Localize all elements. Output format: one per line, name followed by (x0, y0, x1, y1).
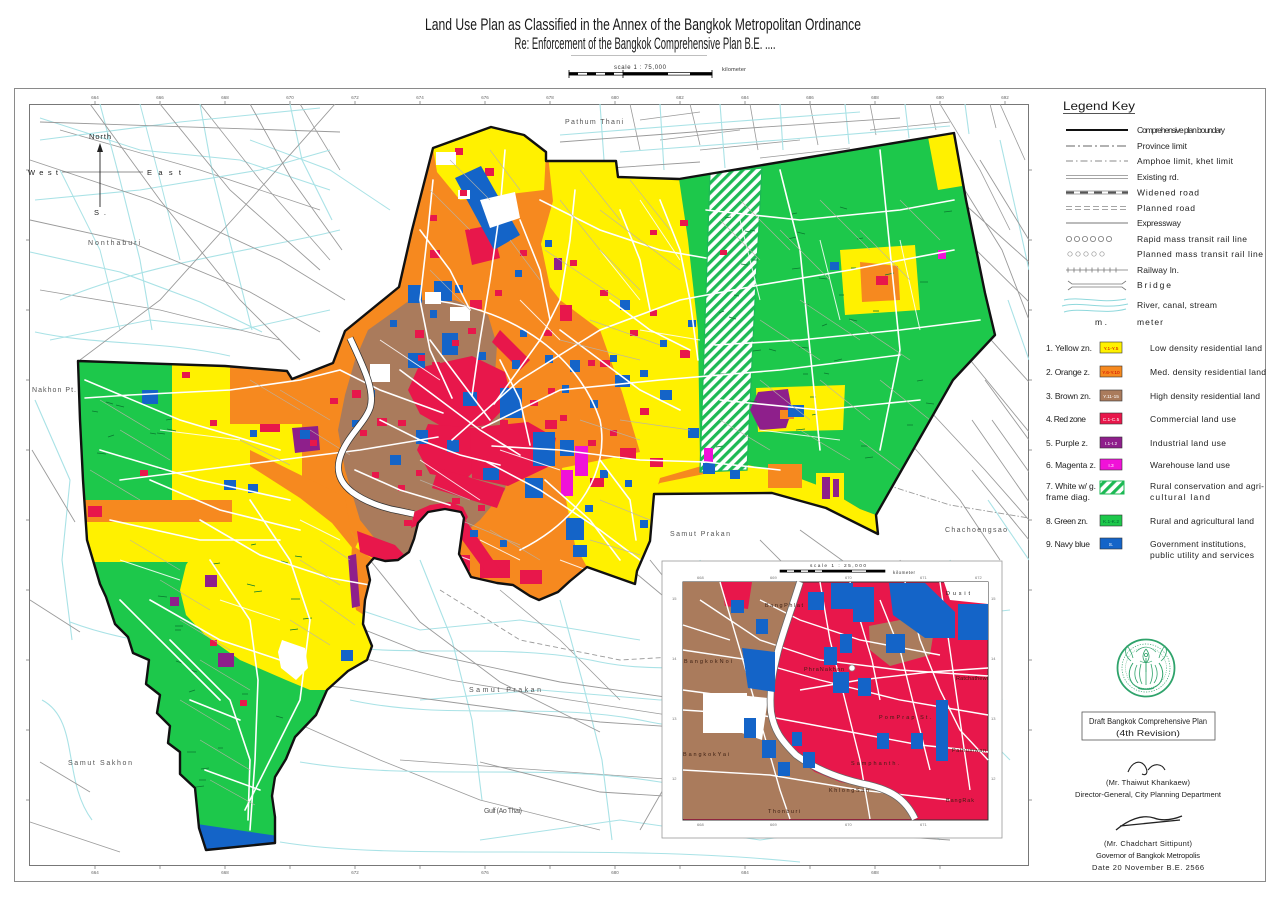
svg-text:Planned road: Planned road (1137, 203, 1195, 213)
svg-text:public utility and services: public utility and services (1150, 550, 1254, 560)
svg-text:BangkokYai: BangkokYai (683, 752, 729, 758)
svg-text:Province limit: Province limit (1137, 141, 1188, 151)
svg-text:Amphoe limit, khet limit: Amphoe limit, khet limit (1137, 156, 1234, 166)
svg-text:(4th Revision): (4th Revision) (1116, 728, 1180, 738)
svg-text:686: 686 (806, 95, 814, 100)
svg-text:Warehouse land use: Warehouse land use (1150, 460, 1230, 470)
svg-text:Y.6-Y.10: Y.6-Y.10 (1102, 370, 1120, 376)
svg-text:692: 692 (1001, 95, 1009, 100)
svg-text:(Mr. Thaiwut Khankaew): (Mr. Thaiwut Khankaew) (1106, 778, 1191, 787)
svg-text:Widened road: Widened road (1137, 188, 1199, 198)
svg-text:672: 672 (351, 870, 359, 875)
svg-text:680: 680 (611, 95, 619, 100)
svg-text:Director-General, City Plannin: Director-General, City Planning Departme… (1075, 790, 1222, 799)
svg-text:Expressway: Expressway (1137, 218, 1182, 228)
svg-text:671: 671 (920, 822, 927, 827)
svg-text:PomPrap St.: PomPrap St. (879, 715, 931, 721)
svg-text:Date 20 November B.E. 2566: Date 20 November B.E. 2566 (1092, 863, 1204, 872)
svg-text:7. White w/ g.: 7. White w/ g. (1046, 481, 1096, 491)
svg-text:Railway ln.: Railway ln. (1137, 265, 1179, 275)
svg-text:Y.1-Y.5: Y.1-Y.5 (1104, 346, 1119, 352)
svg-text:15: 15 (991, 596, 996, 601)
svg-text:K.1-K.2: K.1-K.2 (1103, 519, 1119, 525)
svg-text:Thonburi: Thonburi (768, 809, 800, 815)
svg-text:River, canal, stream: River, canal, stream (1137, 300, 1217, 310)
svg-text:682: 682 (676, 95, 684, 100)
svg-text:12: 12 (991, 776, 996, 781)
svg-text:9. Navy blue: 9. Navy blue (1046, 539, 1090, 549)
svg-text:688: 688 (871, 95, 879, 100)
svg-text:Low density residential land: Low density residential land (1150, 343, 1262, 353)
svg-text:668: 668 (221, 95, 229, 100)
svg-text:672: 672 (351, 95, 359, 100)
svg-text:Legend Key: Legend Key (1063, 99, 1135, 113)
svg-text:Y.11-15: Y.11-15 (1103, 394, 1119, 400)
svg-text:666: 666 (156, 95, 164, 100)
svg-text:Samut Prakan: Samut Prakan (670, 531, 730, 538)
svg-text:Gulf (Ao Thai): Gulf (Ao Thai) (484, 808, 522, 815)
svg-text:676: 676 (481, 870, 489, 875)
svg-text:C.1-C.5: C.1-C.5 (1103, 417, 1120, 423)
svg-text:684: 684 (741, 870, 749, 875)
svg-text:Rural conservation and agri-: Rural conservation and agri- (1150, 481, 1264, 491)
svg-text:frame diag.: frame diag. (1046, 492, 1090, 502)
svg-text:Comprehensive plan boundary: Comprehensive plan boundary (1137, 125, 1226, 135)
svg-text:kilometer: kilometer (722, 67, 746, 73)
svg-text:Pathum Thani: Pathum Thani (565, 119, 623, 126)
svg-text:1. Yellow zn.: 1. Yellow zn. (1046, 343, 1092, 353)
svg-text:Commercial land use: Commercial land use (1150, 414, 1236, 424)
svg-text:PhraNakhon: PhraNakhon (804, 667, 844, 673)
svg-text:14: 14 (991, 656, 996, 661)
svg-text:676: 676 (481, 95, 489, 100)
svg-text:I.3: I.3 (1108, 463, 1114, 469)
svg-text:690: 690 (936, 95, 944, 100)
svg-text:(Mr. Chadchart Sittipunt): (Mr. Chadchart Sittipunt) (1104, 839, 1193, 848)
svg-text:Government institutions,: Government institutions, (1150, 539, 1246, 549)
svg-text:670: 670 (286, 95, 294, 100)
svg-text:678: 678 (546, 95, 554, 100)
svg-text:684: 684 (741, 95, 749, 100)
svg-text:2. Orange z.: 2. Orange z. (1046, 367, 1090, 377)
svg-text:Nakhon Pt.: Nakhon Pt. (32, 387, 76, 394)
svg-text:6. Magenta z.: 6. Magenta z. (1046, 460, 1096, 470)
svg-text:Existing rd.: Existing rd. (1137, 172, 1179, 182)
svg-text:668: 668 (697, 575, 704, 580)
svg-text:cultural land: cultural land (1150, 492, 1210, 502)
svg-text:3. Brown zn.: 3. Brown zn. (1046, 391, 1091, 401)
svg-text:BangRak: BangRak (946, 798, 974, 804)
svg-text:Samut Sakhon: Samut Sakhon (68, 760, 132, 767)
svg-text:Samphanth.: Samphanth. (851, 761, 899, 767)
svg-text:Planned mass transit rail line: Planned mass transit rail line (1137, 249, 1263, 259)
svg-text:664: 664 (91, 95, 99, 100)
svg-text:8. Green zn.: 8. Green zn. (1046, 516, 1088, 526)
svg-text:High density residential land: High density residential land (1150, 391, 1260, 401)
svg-text:670: 670 (845, 575, 852, 580)
svg-text:Rapid mass transit rail line: Rapid mass transit rail line (1137, 234, 1247, 244)
svg-text:Rural and agricultural land: Rural and agricultural land (1150, 516, 1254, 526)
svg-text:12: 12 (672, 776, 677, 781)
svg-text:4. Red zone: 4. Red zone (1046, 414, 1086, 424)
svg-text:S.: S. (1109, 542, 1114, 548)
svg-text:688: 688 (871, 870, 879, 875)
svg-text:scale 1 : 75,000: scale 1 : 75,000 (614, 65, 667, 71)
svg-text:670: 670 (845, 822, 852, 827)
svg-text:Med. density residential land: Med. density residential land (1150, 367, 1266, 377)
svg-text:672: 672 (975, 575, 982, 580)
svg-text:I.1-I.2: I.1-I.2 (1105, 441, 1118, 447)
svg-text:Bridge: Bridge (1137, 280, 1171, 290)
svg-text:13: 13 (991, 716, 996, 721)
svg-text:Governor of Bangkok Metropolis: Governor of Bangkok Metropolis (1096, 851, 1200, 860)
svg-text:Draft Bangkok Comprehensive Pl: Draft Bangkok Comprehensive Plan (1089, 716, 1207, 726)
svg-text:Land Use Plan as Classified in: Land Use Plan as Classified in the Annex… (425, 16, 861, 34)
svg-text:669: 669 (770, 822, 777, 827)
svg-text:680: 680 (611, 870, 619, 875)
svg-text:13: 13 (672, 716, 677, 721)
svg-text:Pathumwan: Pathumwan (952, 748, 986, 754)
svg-text:668: 668 (697, 822, 704, 827)
svg-text:North: North (89, 132, 111, 141)
svg-text:Re: Enforcement of the Bangkok: Re: Enforcement of the Bangkok Comprehen… (515, 35, 776, 53)
svg-text:669: 669 (770, 575, 777, 580)
svg-text:meter: meter (1137, 317, 1163, 327)
svg-text:Industrial land use: Industrial land use (1150, 438, 1226, 448)
svg-text:15: 15 (672, 596, 677, 601)
svg-text:671: 671 (920, 575, 927, 580)
svg-text:674: 674 (416, 95, 424, 100)
svg-text:Ratchathewi: Ratchathewi (956, 676, 988, 682)
svg-text:668: 668 (221, 870, 229, 875)
svg-text:5. Purple z.: 5. Purple z. (1046, 438, 1088, 448)
svg-text:BangPhlat: BangPhlat (765, 603, 803, 609)
svg-text:m.: m. (1095, 317, 1107, 327)
svg-text:kilometer: kilometer (893, 570, 916, 575)
svg-text:664: 664 (91, 870, 99, 875)
svg-text:KhlongSan: KhlongSan (829, 788, 869, 794)
svg-text:14: 14 (672, 656, 677, 661)
